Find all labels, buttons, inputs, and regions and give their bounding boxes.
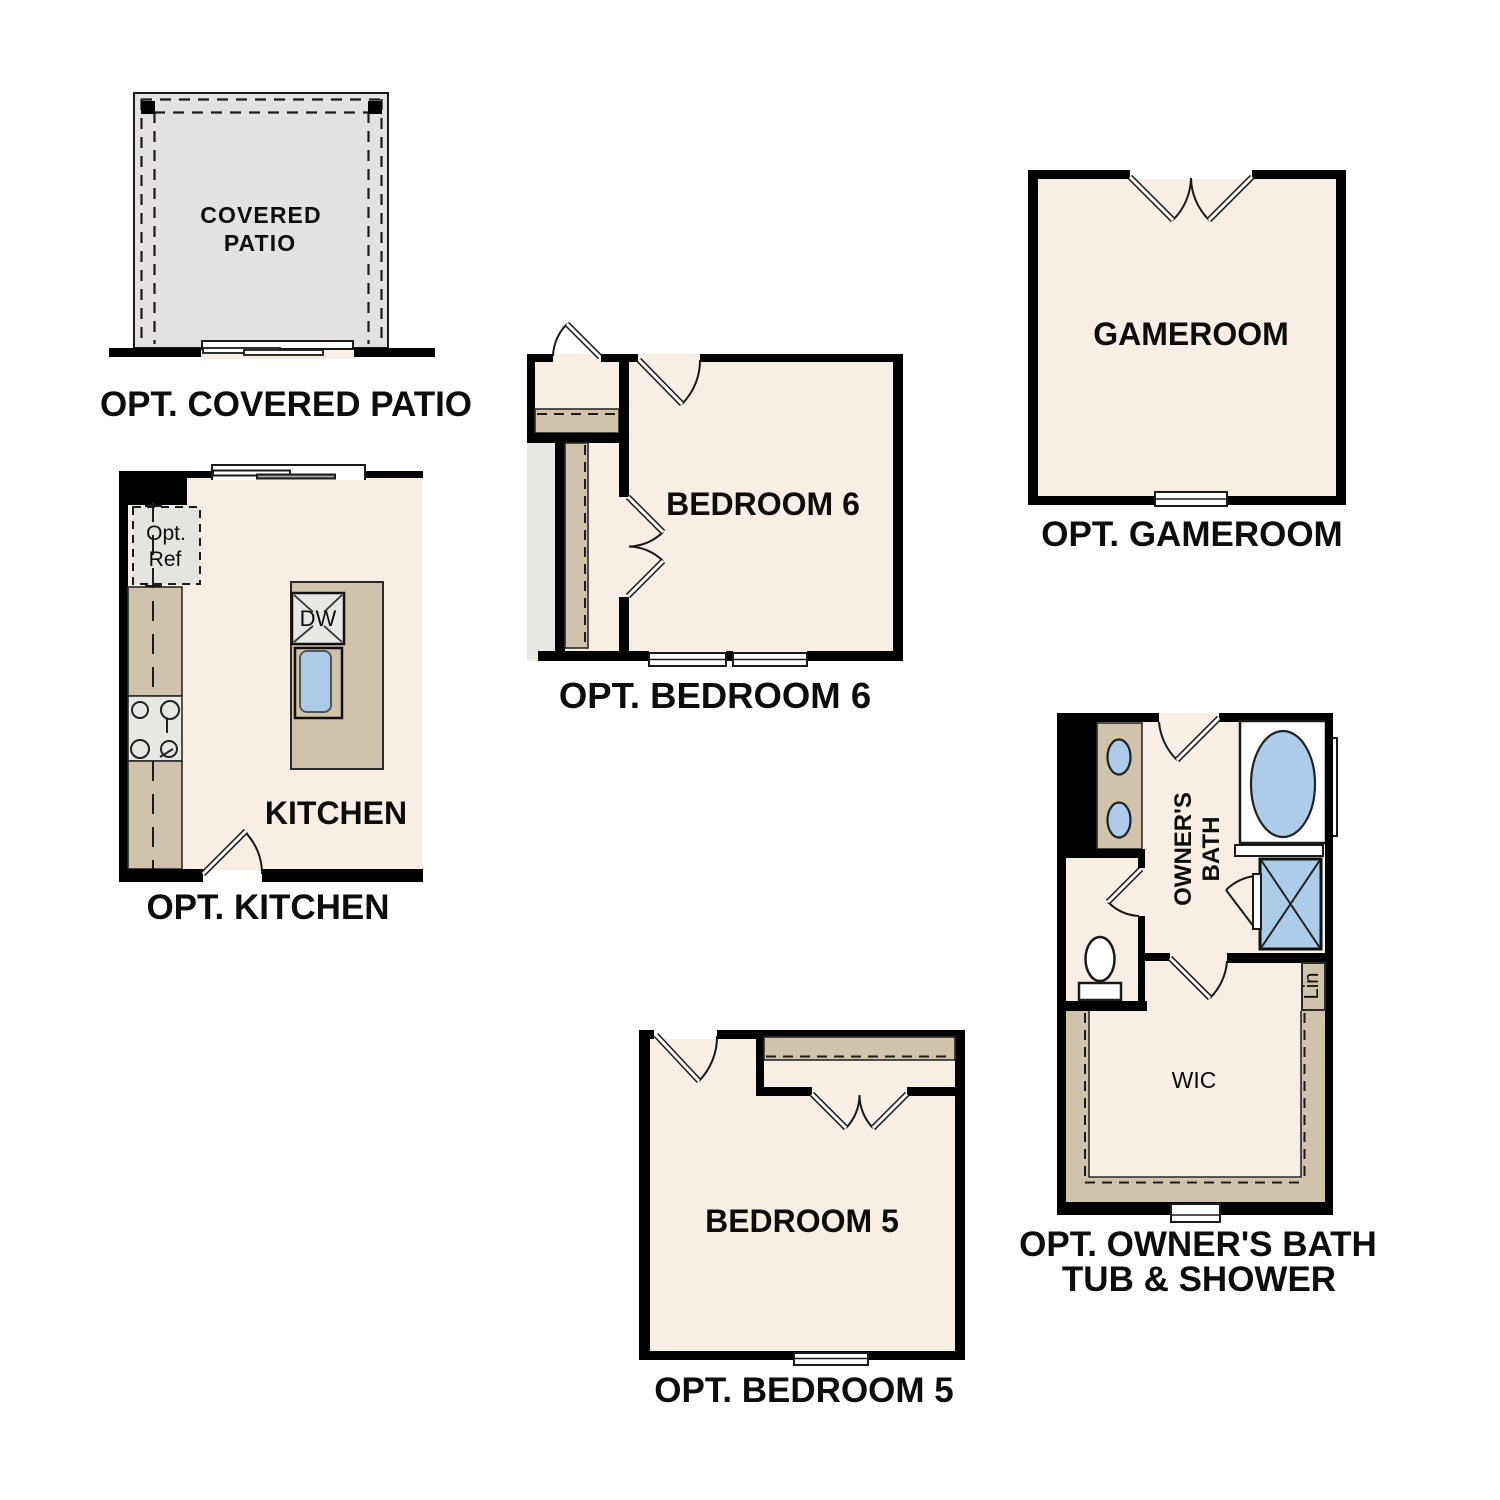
svg-text:BEDROOM 5: BEDROOM 5: [705, 1203, 899, 1239]
svg-text:COVERED: COVERED: [200, 202, 321, 228]
svg-text:DW: DW: [300, 606, 337, 631]
svg-text:Lin: Lin: [1301, 973, 1323, 1000]
svg-text:OPT. BEDROOM 6: OPT. BEDROOM 6: [559, 675, 871, 716]
svg-text:OWNER'S: OWNER'S: [1170, 792, 1197, 906]
svg-text:OPT. GAMEROOM: OPT. GAMEROOM: [1041, 515, 1342, 554]
svg-text:BEDROOM 6: BEDROOM 6: [666, 486, 860, 522]
svg-text:BATH: BATH: [1198, 817, 1225, 882]
svg-text:TUB & SHOWER: TUB & SHOWER: [1062, 1260, 1336, 1299]
svg-text:PATIO: PATIO: [224, 230, 296, 256]
svg-text:OPT. KITCHEN: OPT. KITCHEN: [146, 888, 389, 927]
svg-text:GAMEROOM: GAMEROOM: [1093, 316, 1289, 352]
svg-text:WIC: WIC: [1172, 1067, 1217, 1093]
svg-text:OPT. BEDROOM 5: OPT. BEDROOM 5: [654, 1371, 953, 1410]
svg-text:KITCHEN: KITCHEN: [265, 795, 407, 831]
svg-text:OPT. OWNER'S BATH: OPT. OWNER'S BATH: [1019, 1225, 1377, 1264]
svg-text:OPT. COVERED PATIO: OPT. COVERED PATIO: [100, 385, 472, 424]
